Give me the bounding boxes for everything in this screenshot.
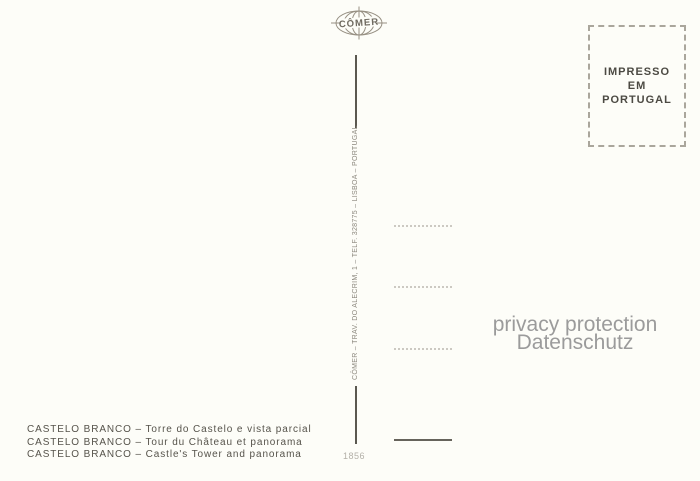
caption-line-pt: CASTELO BRANCO – Torre do Castelo e vist… (27, 424, 312, 437)
serial-number: 1856 (343, 451, 365, 461)
publisher-logo-text: CÔMER (338, 16, 379, 31)
watermark-line: Datenschutz (455, 336, 695, 350)
privacy-watermark: privacy protection Datenschutz (455, 314, 695, 350)
address-solid-line (394, 439, 452, 441)
address-dotted-line (394, 225, 452, 227)
stamp-box: IMPRESSO EM PORTUGAL (588, 25, 686, 147)
divider-line-bottom (355, 386, 357, 444)
stamp-box-line: PORTUGAL (602, 93, 672, 107)
caption-line-fr: CASTELO BRANCO – Tour du Château et pano… (27, 437, 312, 450)
address-dotted-line (394, 286, 452, 288)
divider-line-top (355, 55, 357, 128)
spine-imprint-text: CÔMER – TRAV. DO ALECRIM, 1 – TELF. 3287… (352, 130, 359, 380)
caption-block: CASTELO BRANCO – Torre do Castelo e vist… (27, 424, 312, 462)
stamp-box-line: EM (628, 79, 647, 93)
caption-line-en: CASTELO BRANCO – Castle's Tower and pano… (27, 449, 312, 462)
stamp-box-line: IMPRESSO (604, 65, 670, 79)
postcard-back: CÔMER IMPRESSO EM PORTUGAL CÔMER – TRAV.… (0, 0, 700, 481)
address-dotted-line (394, 348, 452, 350)
publisher-globe-logo: CÔMER (328, 5, 390, 41)
